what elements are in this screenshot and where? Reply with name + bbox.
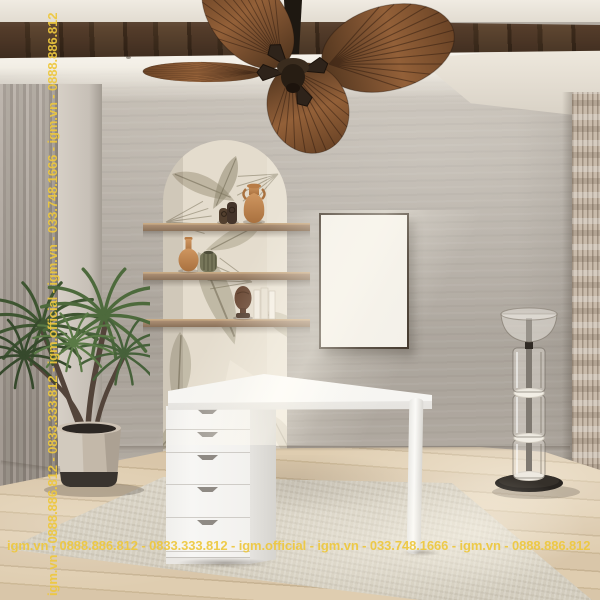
watermark-bottom: igm.vn - 0888.886.812 - 0833.333.812 - i… bbox=[0, 536, 600, 556]
potted-plant bbox=[0, 260, 150, 500]
amphora-vase bbox=[243, 184, 265, 225]
drawer-handle bbox=[197, 520, 218, 525]
glass-floor-lamp bbox=[478, 296, 594, 502]
books bbox=[254, 288, 275, 319]
fan-blade bbox=[143, 61, 263, 82]
igm-poster-frame: IGMOFFICIALIGMOFFICIALIGMOFFICIALIGMOFFI… bbox=[319, 213, 409, 349]
watermark-left-vertical: igm.vn - 0888.886.812 - 0833.333.812 - i… bbox=[44, 0, 62, 600]
plant-foliage bbox=[0, 269, 150, 388]
plant-pot bbox=[57, 422, 121, 488]
drawer-unit-shadow bbox=[158, 556, 292, 570]
drawer-handle bbox=[197, 487, 218, 492]
drawer-handle bbox=[197, 432, 218, 437]
ribbed-vase bbox=[200, 251, 217, 272]
white-desk bbox=[164, 368, 436, 412]
ceiling-fan bbox=[118, 0, 463, 160]
lamp-bowl bbox=[501, 308, 557, 342]
lamp-glass-segments bbox=[513, 348, 545, 481]
drawer-handle bbox=[197, 455, 218, 460]
desk-leg bbox=[407, 398, 424, 554]
interior-render: IGMOFFICIALIGMOFFICIALIGMOFFICIALIGMOFFI… bbox=[0, 0, 600, 600]
